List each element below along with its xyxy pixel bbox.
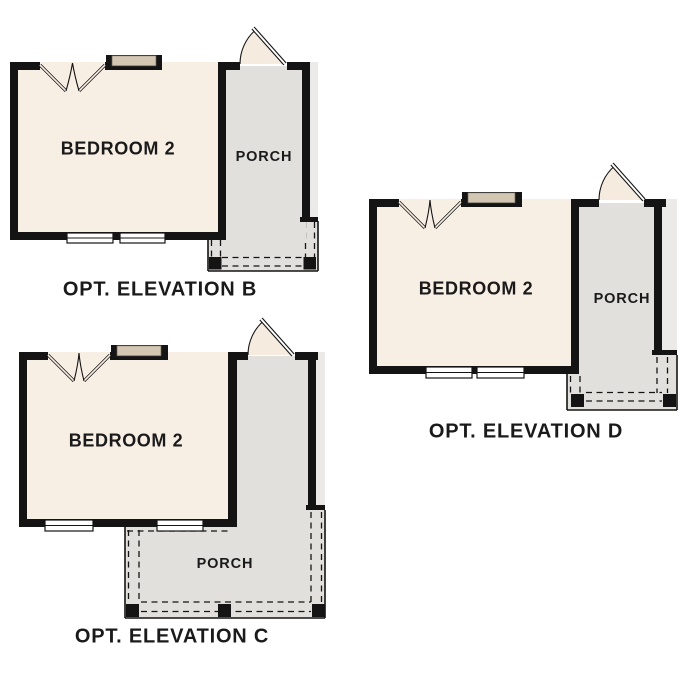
porch-area-d — [579, 203, 654, 374]
porch-post — [312, 604, 325, 617]
window-b-right — [120, 233, 165, 243]
window-b-left — [67, 233, 113, 243]
roof-eave-c — [316, 352, 325, 505]
porch-label-d: PORCH — [594, 291, 651, 307]
window-c-right — [157, 520, 203, 531]
plan-elevation-c — [19, 319, 325, 618]
porch-label-b: PORCH — [236, 149, 293, 165]
floorplan-sheet: BEDROOM 2 PORCH OPT. ELEVATION B BEDROOM… — [0, 0, 687, 687]
window-c-left — [45, 520, 93, 531]
bedroom-label-c: BEDROOM 2 — [69, 431, 183, 452]
window-d-right — [477, 367, 524, 378]
bedroom-label-d: BEDROOM 2 — [419, 279, 533, 300]
porch-post — [209, 257, 222, 270]
bedroom-label-b: BEDROOM 2 — [61, 139, 175, 160]
window-header-d — [462, 192, 522, 207]
porch-post — [218, 604, 231, 617]
floorplan-canvas — [0, 0, 687, 687]
window-d-left — [426, 367, 472, 378]
elevation-title-b: OPT. ELEVATION B — [63, 279, 257, 302]
roof-eave-b — [310, 62, 318, 218]
porch-area-c — [232, 356, 308, 527]
window-header-b — [106, 55, 162, 70]
porch-post — [663, 394, 676, 407]
porch-post — [126, 604, 139, 617]
roof-eave-d — [662, 199, 677, 350]
porch-post — [571, 394, 584, 407]
door-swing-icon — [599, 164, 644, 200]
elevation-title-d: OPT. ELEVATION D — [429, 421, 623, 444]
elevation-title-c: OPT. ELEVATION C — [75, 626, 269, 649]
door-swing-icon — [240, 28, 285, 64]
porch-label-c: PORCH — [197, 556, 254, 572]
porch-post — [304, 257, 317, 270]
door-swing-icon — [248, 319, 293, 355]
window-header-c — [111, 345, 168, 360]
